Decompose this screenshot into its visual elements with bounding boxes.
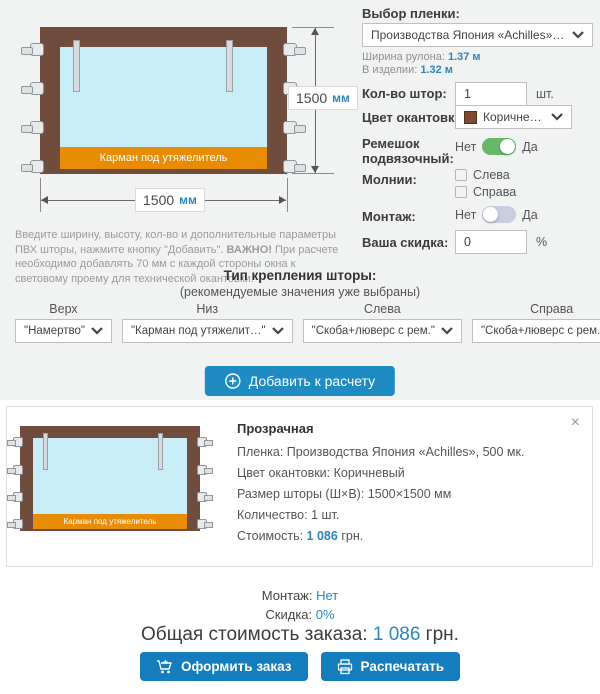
fastening-top: Верх "Намертво": [15, 302, 112, 344]
fastening-left: Слева "Скоба+люверс с рем.": [303, 302, 462, 344]
row-label: Количество:: [237, 508, 308, 522]
fastening-bottom-value: "Карман под утяжелит…": [131, 325, 266, 337]
tie-strap-right: [226, 40, 233, 92]
curtain-thumbnail: Карман под утяжелитель: [20, 426, 200, 531]
toggle-knob: [500, 139, 515, 154]
width-value: 1500: [143, 192, 174, 208]
edging-color-label: Цвет окантовки:: [362, 110, 467, 125]
discount-label: Ваша скидка:: [362, 235, 448, 250]
summary-mounting-value: Нет: [316, 588, 338, 603]
add-to-calculation-button[interactable]: Добавить к расчету: [205, 366, 395, 396]
item-film-row: Пленка: Производства Япония «Achilles», …: [237, 445, 552, 459]
fastener-hook-icon: [13, 465, 23, 475]
film-select-value: Производства Япония «Achilles», 500 мк.: [371, 28, 566, 42]
chevron-down-icon: [441, 327, 453, 335]
fastening-left-value: "Скоба+люверс с рем.": [312, 325, 435, 337]
summary-mounting-label: Монтаж:: [262, 588, 313, 603]
tie-strap-left: [73, 40, 80, 92]
fastening-subtitle: (рекомендуемые значения уже выбраны): [0, 285, 600, 299]
product-width-label: В изделии:: [362, 64, 417, 76]
fastening-bottom-select[interactable]: "Карман под утяжелит…": [122, 319, 293, 343]
row-value: 1500×1500 мм: [368, 487, 452, 501]
item-quantity-row: Количество: 1 шт.: [237, 508, 552, 522]
roll-width-value: 1.37 м: [448, 51, 481, 63]
intro-important: ВАЖНО!: [226, 244, 271, 256]
weight-pocket-label: Карман под утяжелитель: [33, 514, 187, 529]
item-price-row: Стоимость: 1 086 грн.: [237, 529, 552, 543]
print-button[interactable]: Распечатать: [321, 652, 461, 681]
item-edging-row: Цвет окантовки: Коричневый: [237, 466, 552, 480]
row-value: Коричневый: [334, 466, 405, 480]
quantity-label: Кол-во штор:: [362, 86, 447, 101]
zipper-left-label: Слева: [473, 168, 510, 182]
brown-swatch-icon: [464, 111, 477, 124]
summary-mounting: Монтаж: Нет: [0, 588, 600, 603]
fastener-hook-icon: [197, 437, 207, 447]
tie-strap-left: [43, 433, 48, 470]
curtain-frame: Карман под утяжелитель: [40, 27, 287, 174]
toggle-knob: [483, 207, 498, 222]
height-unit: мм: [332, 91, 350, 105]
edging-color-select[interactable]: Коричневый: [455, 105, 572, 129]
thumbnail-film: Карман под утяжелитель: [33, 438, 187, 529]
zippers-label: Молнии:: [362, 172, 417, 187]
item-size-row: Размер шторы (Ш×В): 1500×1500 мм: [237, 487, 552, 501]
row-label: Размер шторы (Ш×В):: [237, 487, 364, 501]
fastener-hook-icon: [13, 437, 23, 447]
roll-width-label: Ширина рулона:: [362, 51, 445, 63]
summary-discount: Скидка: 0%: [0, 607, 600, 622]
summary-total-unit: грн.: [426, 624, 459, 645]
mounting-label: Монтаж:: [362, 209, 416, 224]
height-value: 1500: [296, 90, 327, 106]
fastening-top-label: Верх: [15, 302, 112, 319]
fastener-hook-icon: [30, 43, 44, 56]
price-unit: грн.: [341, 529, 363, 543]
row-label: Пленка:: [237, 445, 283, 459]
summary-total-label: Общая стоимость заказа:: [141, 624, 368, 645]
quantity-unit: шт.: [536, 87, 554, 101]
fastening-left-select[interactable]: "Скоба+люверс с рем.": [303, 319, 462, 343]
product-width-info: В изделии: 1.32 м: [362, 64, 453, 76]
fastener-hook-icon: [13, 519, 23, 529]
fastening-right-label: Справа: [472, 302, 600, 319]
tie-strap-right: [158, 433, 163, 470]
summary-discount-label: Скидка:: [265, 607, 312, 622]
fastening-top-select[interactable]: "Намертво": [15, 319, 112, 343]
zipper-right-checkbox[interactable]: [455, 186, 467, 198]
fastening-bottom-label: Низ: [122, 302, 293, 319]
chevron-down-icon: [91, 327, 103, 335]
film-select[interactable]: Производства Япония «Achilles», 500 мк.: [362, 23, 593, 47]
fastening-grid: Верх "Намертво" Низ "Карман под утяжелит…: [15, 302, 585, 344]
fastener-hook-icon: [30, 160, 44, 173]
chevron-down-icon: [572, 31, 584, 39]
checkout-button[interactable]: Оформить заказ: [140, 652, 308, 681]
width-unit: мм: [179, 193, 197, 207]
curtain-diagram: Карман под утяжелитель 1500 мм: [0, 0, 360, 230]
toggle-on-label: Да: [522, 208, 537, 222]
zipper-left-option: Слева: [455, 168, 510, 182]
close-icon[interactable]: ×: [571, 415, 580, 431]
fastener-hook-icon: [283, 43, 297, 56]
summary-total-value: 1 086: [373, 624, 421, 645]
fastening-right: Справа "Скоба+люверс с рем.": [472, 302, 600, 344]
fastening-right-select[interactable]: "Скоба+люверс с рем.": [472, 319, 600, 343]
mounting-toggle[interactable]: Нет Да: [455, 206, 538, 223]
fastener-hook-icon: [197, 492, 207, 502]
arrow-down-icon: [311, 166, 319, 173]
toggle-off-label: Нет: [455, 208, 476, 222]
checkout-label: Оформить заказ: [181, 659, 292, 674]
fastener-hook-icon: [283, 160, 297, 173]
fastening-right-value: "Скоба+люверс с рем.": [481, 325, 600, 337]
fastening-top-value: "Намертво": [24, 325, 85, 337]
cart-plus-icon: [156, 659, 173, 675]
item-title: Прозрачная: [237, 421, 552, 436]
configurator-panel: Карман под утяжелитель 1500 мм: [0, 0, 600, 400]
arrow-up-icon: [311, 28, 319, 35]
zipper-right-label: Справа: [473, 185, 516, 199]
fastening-left-label: Слева: [303, 302, 462, 319]
row-label: Цвет окантовки:: [237, 466, 330, 480]
order-item-card: Карман под утяжелитель Прозрачная Пленка…: [6, 406, 593, 567]
zipper-right-option: Справа: [455, 185, 516, 199]
film-select-label: Выбор пленки:: [362, 6, 460, 21]
chevron-down-icon: [272, 327, 284, 335]
dimension-tick: [40, 178, 41, 212]
add-button-label: Добавить к расчету: [249, 373, 375, 389]
action-buttons: Оформить заказ Распечатать: [0, 652, 600, 681]
fastener-hook-icon: [30, 121, 44, 134]
product-width-value: 1.32 м: [420, 64, 453, 76]
quantity-input[interactable]: [455, 82, 527, 106]
tie-strap-label: Ремешок подвязочный:: [362, 136, 454, 166]
plus-circle-icon: [225, 373, 241, 389]
fastener-hook-icon: [30, 82, 44, 95]
toggle-off-label: Нет: [455, 140, 476, 154]
dimension-tick: [287, 178, 288, 212]
dimension-tick: [292, 173, 334, 174]
fastener-hook-icon: [283, 121, 297, 134]
zipper-left-checkbox[interactable]: [455, 169, 467, 181]
curtain-film: Карман под утяжелитель: [60, 47, 267, 169]
toggle-switch[interactable]: [482, 206, 516, 223]
printer-icon: [337, 659, 353, 675]
tie-strap-toggle[interactable]: Нет Да: [455, 138, 538, 155]
discount-unit: %: [536, 235, 547, 249]
weight-pocket-label: Карман под утяжелитель: [60, 147, 267, 169]
width-dimension-label: 1500 мм: [135, 188, 205, 212]
toggle-switch[interactable]: [482, 138, 516, 155]
discount-input[interactable]: [455, 230, 527, 254]
price-value: 1 086: [307, 529, 338, 543]
height-dimension-label: 1500 мм: [288, 86, 358, 110]
roll-width-info: Ширина рулона: 1.37 м: [362, 51, 481, 63]
curtain-configurator-page: Карман под утяжелитель 1500 мм: [0, 0, 600, 694]
item-details: Прозрачная Пленка: Производства Япония «…: [237, 421, 552, 550]
price-label: Стоимость:: [237, 529, 303, 543]
fastener-hook-icon: [13, 492, 23, 502]
fastening-bottom: Низ "Карман под утяжелит…": [122, 302, 293, 344]
arrow-right-icon: [279, 196, 286, 204]
toggle-on-label: Да: [522, 140, 537, 154]
print-label: Распечатать: [361, 659, 445, 674]
fastener-hook-icon: [197, 519, 207, 529]
edging-color-value: Коричневый: [483, 110, 545, 124]
row-value: 1 шт.: [311, 508, 339, 522]
fastening-title: Тип крепления шторы:: [0, 268, 600, 283]
fastener-hook-icon: [197, 465, 207, 475]
summary-discount-value: 0%: [316, 607, 335, 622]
summary-total: Общая стоимость заказа: 1 086 грн.: [0, 624, 600, 646]
arrow-left-icon: [41, 196, 48, 204]
row-value: Производства Япония «Achilles», 500 мк.: [287, 445, 525, 459]
chevron-down-icon: [551, 113, 563, 121]
